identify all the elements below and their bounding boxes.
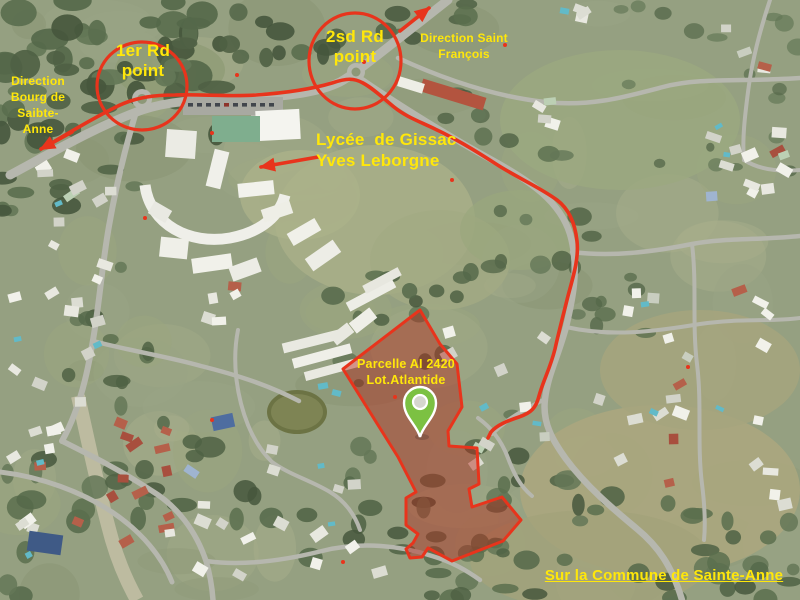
route-annotations: [0, 0, 800, 600]
lycee-pointer-arrow: [261, 157, 318, 167]
parcel-outline: [343, 310, 521, 561]
direction-bourg-arrow: [41, 132, 72, 149]
roundabout-circle-1: [97, 42, 187, 130]
direction-saint-francois-arrow: [400, 8, 429, 31]
route-line: [50, 79, 577, 438]
roundabout-circle-2: [309, 13, 401, 109]
aerial-map-image: 1er Rd point 2sd Rd point Direction Bour…: [0, 0, 800, 600]
